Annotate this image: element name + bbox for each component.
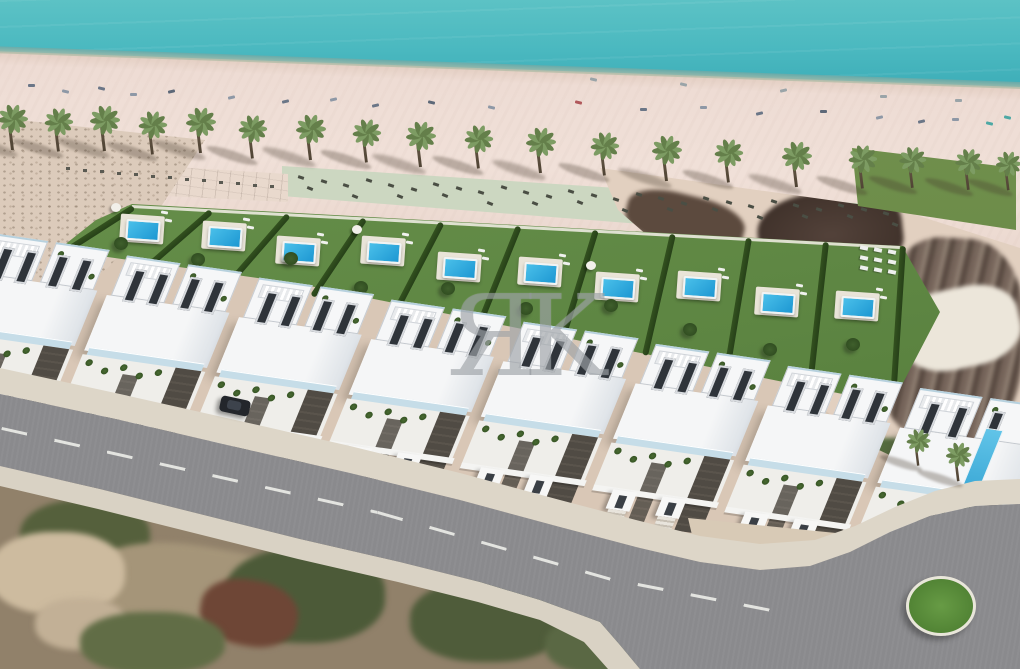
entrance-door: [532, 480, 545, 494]
roundabout-island: [906, 576, 976, 636]
watermark-text: ЯK: [447, 281, 593, 393]
watermark-monogram: ЯK: [440, 272, 600, 402]
aerial-render: ЯK: [0, 0, 1020, 669]
vegetation-clump: [80, 612, 225, 669]
entrance-door: [664, 502, 677, 516]
entrance-door: [614, 495, 627, 509]
